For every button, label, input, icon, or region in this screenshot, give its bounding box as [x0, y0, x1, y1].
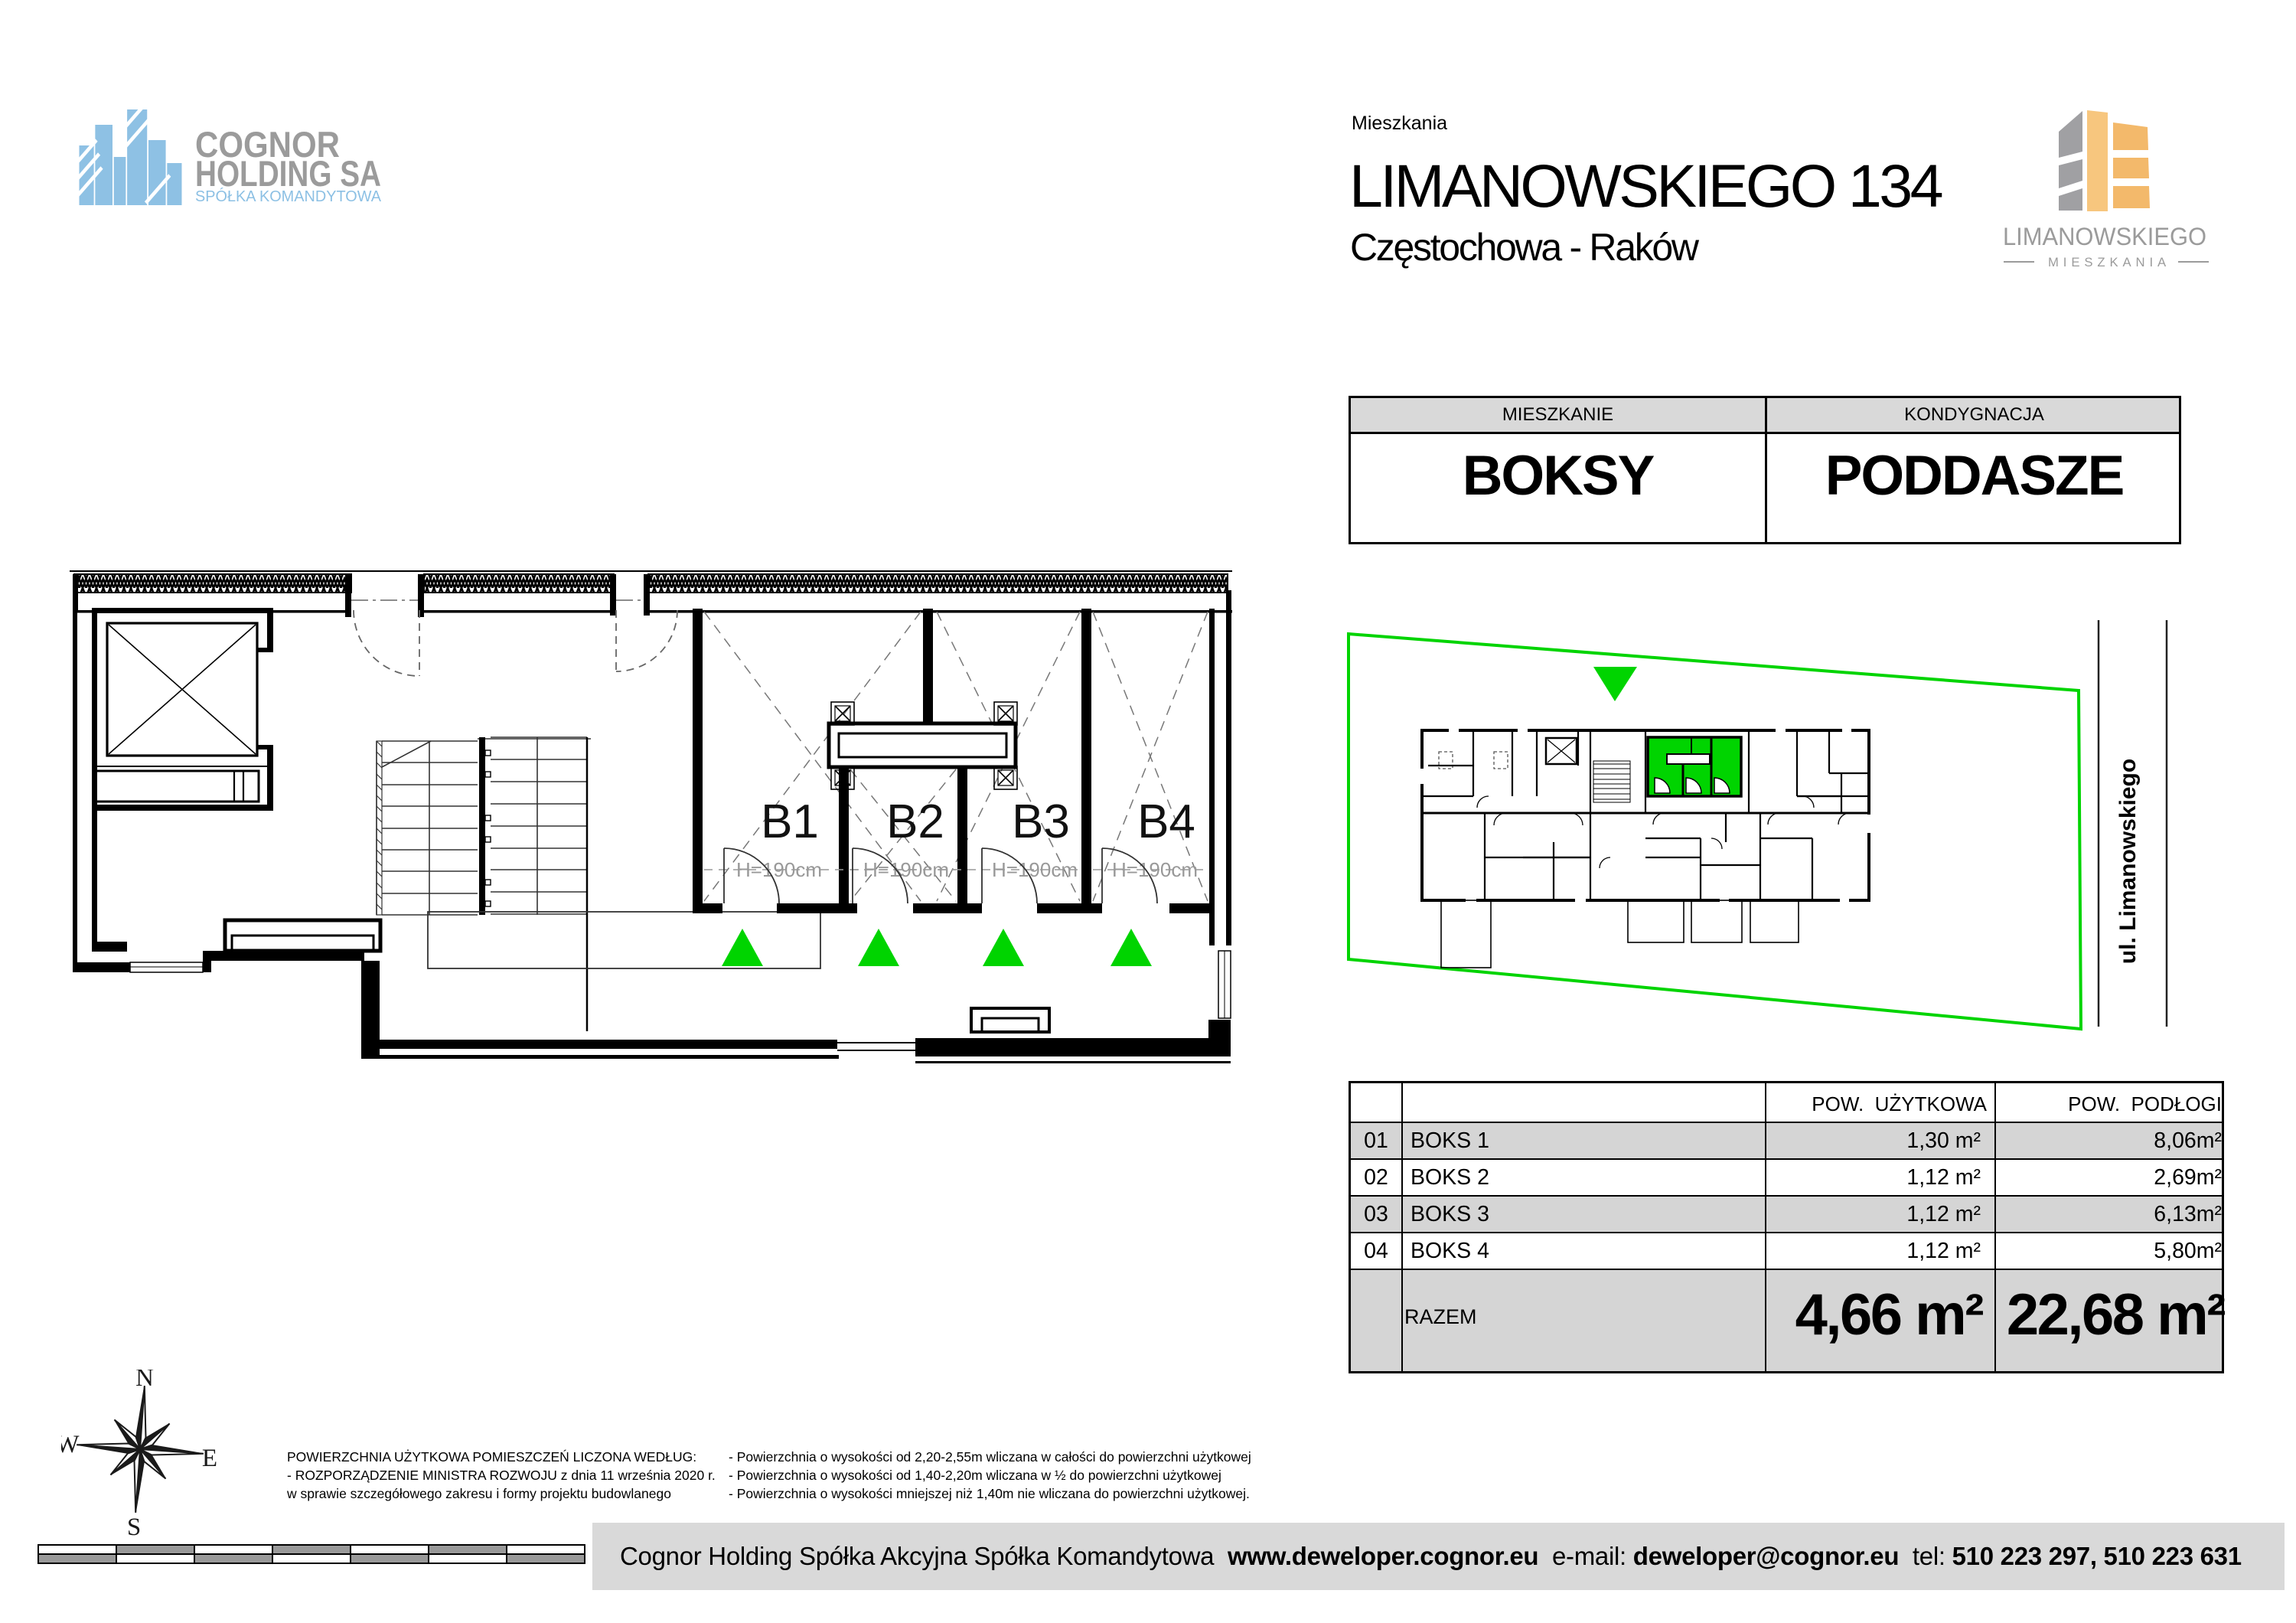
- svg-text:ul. Limanowskiego: ul. Limanowskiego: [2115, 759, 2141, 964]
- svg-text:B4: B4: [1137, 795, 1195, 848]
- svg-text:MIESZKANIA: MIESZKANIA: [2048, 255, 2170, 269]
- svg-text:W: W: [61, 1431, 80, 1458]
- svg-text:H=190cm: H=190cm: [1112, 858, 1198, 881]
- svg-text:E: E: [202, 1445, 217, 1472]
- svg-text:B1: B1: [761, 795, 819, 848]
- svg-text:N: N: [135, 1370, 154, 1392]
- svg-text:B2: B2: [886, 795, 944, 848]
- svg-text:H=190cm: H=190cm: [992, 858, 1078, 881]
- svg-text:H=190cm: H=190cm: [736, 858, 822, 881]
- svg-text:S: S: [127, 1514, 141, 1541]
- svg-text:B3: B3: [1012, 795, 1070, 848]
- svg-text:H=190cm: H=190cm: [863, 858, 949, 881]
- svg-text:SPÓŁKA KOMANDYTOWA: SPÓŁKA KOMANDYTOWA: [195, 188, 382, 205]
- svg-text:LIMANOWSKIEGO: LIMANOWSKIEGO: [2003, 223, 2206, 250]
